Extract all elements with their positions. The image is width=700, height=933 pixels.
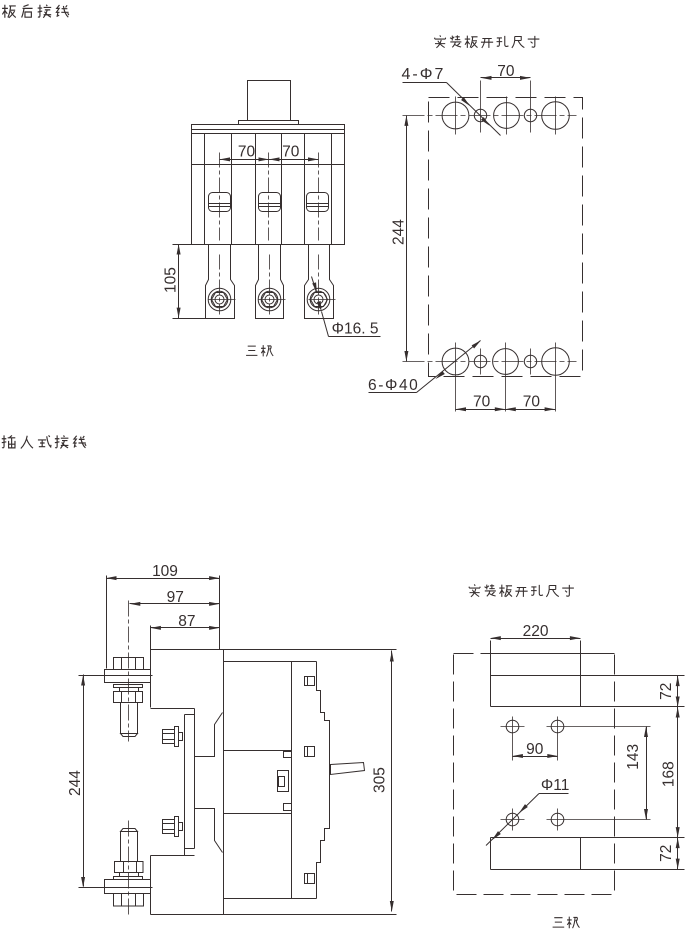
svg-text:70: 70 [497,63,515,80]
svg-text:70: 70 [523,394,541,411]
svg-text:72: 72 [658,845,675,862]
svg-text:109: 109 [152,563,178,580]
svg-text:70: 70 [282,144,300,161]
svg-text:Φ16. 5: Φ16. 5 [332,321,379,338]
svg-text:168: 168 [661,761,678,787]
svg-text:Φ11: Φ11 [541,777,569,794]
svg-text:87: 87 [178,613,195,630]
svg-text:220: 220 [523,623,549,640]
svg-text:105: 105 [163,267,180,293]
svg-text:6-Φ40: 6-Φ40 [368,377,419,394]
svg-text:90: 90 [526,741,544,758]
svg-text:244: 244 [67,770,84,796]
svg-text:143: 143 [625,744,642,770]
svg-text:244: 244 [391,219,408,245]
svg-text:4-Φ7: 4-Φ7 [402,66,446,83]
svg-text:97: 97 [167,589,184,606]
svg-text:70: 70 [238,144,256,161]
svg-text:72: 72 [658,683,675,700]
svg-text:305: 305 [372,767,389,793]
svg-text:70: 70 [473,394,491,411]
